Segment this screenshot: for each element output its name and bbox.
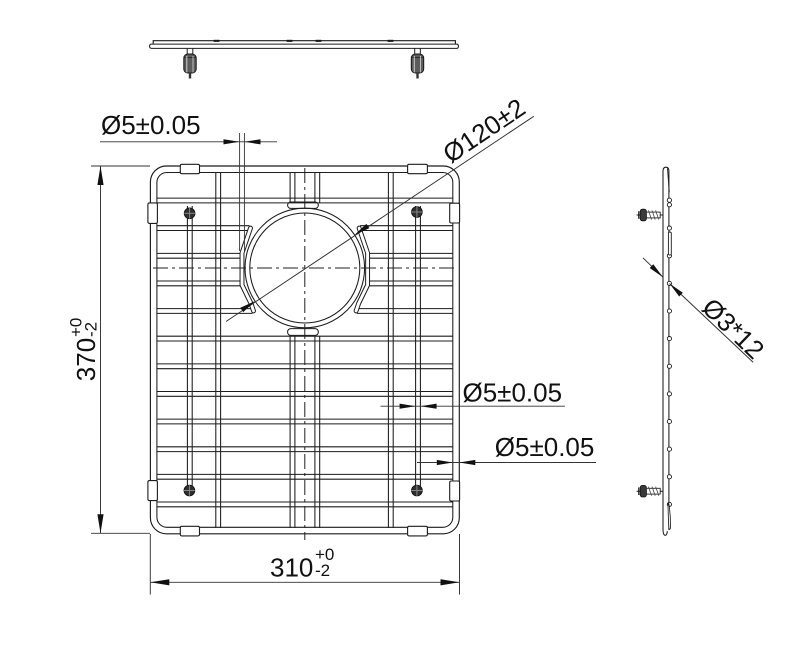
svg-text:-2: -2 (82, 322, 101, 337)
svg-text:Ø5±0.05: Ø5±0.05 (495, 432, 595, 462)
svg-text:370: 370 (71, 338, 101, 381)
svg-text:Ø120±2: Ø120±2 (437, 92, 530, 169)
svg-text:Ø5±0.05: Ø5±0.05 (101, 110, 201, 140)
svg-text:Ø5±0.05: Ø5±0.05 (463, 378, 563, 408)
svg-text:310: 310 (270, 553, 313, 583)
svg-text:-2: -2 (315, 561, 330, 580)
svg-text:Ø3*12: Ø3*12 (696, 292, 770, 365)
